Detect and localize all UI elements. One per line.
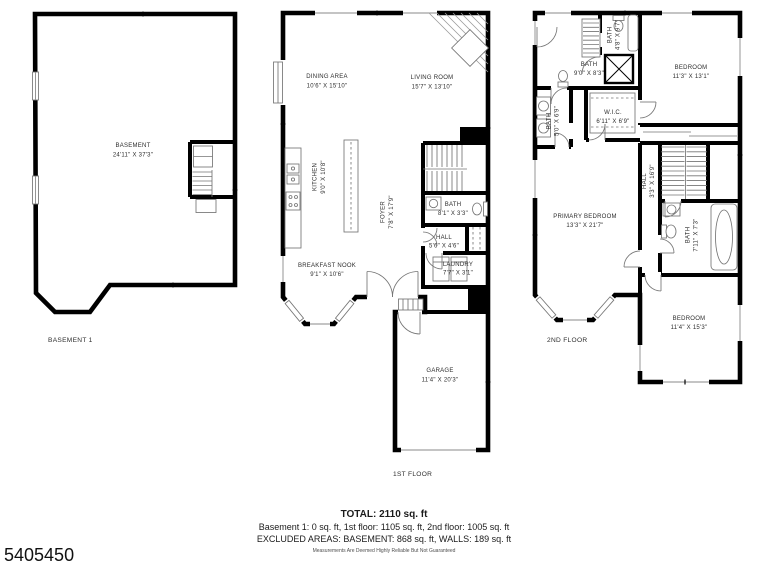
room-dims-hall1: 5'6" X 4'6" bbox=[429, 244, 459, 250]
room-dims-bedroom-top: 11'3" X 13'1" bbox=[673, 74, 710, 80]
room-label-bath1: BATH bbox=[445, 202, 462, 208]
room-label-bath-left: BATH bbox=[547, 113, 553, 130]
summary-floors-line: Basement 1: 0 sq. ft, 1st floor: 1105 sq… bbox=[0, 522, 768, 532]
summary-disclaimer: Measurements Are Deemed Highly Reliable … bbox=[0, 548, 768, 554]
basement-floor-plan: BASEMENT 24'11" X 37'3" BASEMENT 1 bbox=[28, 6, 240, 351]
room-dims-nook: 9'1" X 10'6" bbox=[310, 272, 344, 278]
room-label-bedroom-top: BEDROOM bbox=[675, 65, 708, 71]
floorplan-image: BASEMENT 24'11" X 37'3" BASEMENT 1 bbox=[0, 0, 768, 576]
room-label-wic: W.I.C. bbox=[604, 110, 622, 116]
room-label-hall2: HALL bbox=[642, 173, 648, 189]
wic-shelving bbox=[589, 93, 635, 140]
floor-label-first: 1ST FLOOR bbox=[393, 471, 432, 478]
room-dims-bath-small: 4'8" X 9'7" bbox=[616, 20, 622, 50]
room-dims-garage: 11'4" X 20'3" bbox=[422, 378, 459, 384]
bath-left-fixtures bbox=[537, 97, 570, 147]
room-label-bath-mid: BATH bbox=[686, 227, 692, 244]
room-label-bath-small: BATH bbox=[608, 27, 614, 44]
first-floor-stairs bbox=[423, 145, 467, 191]
room-dims-dining: 10'6" X 15'10" bbox=[307, 84, 348, 90]
room-dims-wic: 6'11" X 6'9" bbox=[596, 119, 629, 125]
floor-label-basement: BASEMENT 1 bbox=[48, 337, 93, 344]
room-dims-kitchen: 9'0" X 10'8" bbox=[321, 160, 327, 194]
basement-stairs bbox=[193, 146, 217, 213]
entry-steps bbox=[399, 299, 424, 310]
room-label-basement: BASEMENT bbox=[115, 143, 150, 149]
room-label-nook: BREAKFAST NOOK bbox=[298, 263, 356, 269]
first-floor-plan: DINING AREA 10'6" X 15'10" LIVING ROOM 1… bbox=[270, 6, 510, 484]
room-dims-bedroom-bottom: 11'4" X 15'3" bbox=[671, 325, 708, 331]
second-floor-walls bbox=[535, 13, 740, 382]
room-label-garage: GARAGE bbox=[426, 368, 453, 374]
room-label-bedroom-bottom: BEDROOM bbox=[673, 316, 706, 322]
area-summary: TOTAL: 2110 sq. ft Basement 1: 0 sq. ft,… bbox=[0, 509, 768, 554]
room-dims-bath1: 8'1" X 3'3" bbox=[438, 211, 468, 217]
room-label-living: LIVING ROOM bbox=[411, 75, 454, 81]
room-label-primary: PRIMARY BEDROOM bbox=[553, 214, 617, 220]
room-dims-bath-left: 5'0" X 6'9" bbox=[555, 106, 561, 136]
floor-label-second: 2ND FLOOR bbox=[547, 337, 587, 344]
second-floor-windows bbox=[532, 10, 743, 385]
room-label-laundry: LAUNDRY bbox=[443, 262, 473, 268]
bedroom-top-closet bbox=[640, 102, 737, 136]
room-dims-primary: 13'3" X 21'7" bbox=[566, 223, 603, 229]
room-label-bath-top: BATH bbox=[581, 62, 598, 68]
room-label-dining: DINING AREA bbox=[306, 74, 347, 80]
room-label-foyer: FOYER bbox=[381, 201, 387, 223]
linen-closet bbox=[605, 55, 633, 83]
room-dims-basement: 24'11" X 37'3" bbox=[113, 153, 153, 159]
summary-total: TOTAL: 2110 sq. ft bbox=[0, 509, 768, 520]
photo-id: 5405450 bbox=[4, 545, 74, 566]
summary-excluded-line: EXCLUDED AREAS: BASEMENT: 868 sq. ft, WA… bbox=[0, 534, 768, 544]
room-dims-laundry: 7'7" X 3'1" bbox=[443, 271, 473, 277]
fireplace bbox=[429, 13, 488, 72]
room-dims-hall2: 3'3" X 16'9" bbox=[650, 164, 656, 198]
room-label-kitchen: KITCHEN bbox=[313, 163, 319, 191]
second-floor-ticks bbox=[533, 11, 743, 385]
room-dims-foyer: 7'8" X 17'9" bbox=[389, 195, 395, 229]
second-floor-stairs bbox=[661, 145, 707, 199]
second-floor-plan: BATH 9'0" X 8'3" BATH 4'8" X 9'7" BEDROO… bbox=[525, 5, 753, 405]
room-label-hall1: HALL bbox=[436, 235, 452, 241]
room-dims-living: 15'7" X 13'10" bbox=[412, 85, 453, 91]
room-dims-bath-top: 9'0" X 8'3" bbox=[574, 71, 604, 77]
room-dims-bath-mid: 7'11" X 7'3" bbox=[694, 218, 700, 251]
